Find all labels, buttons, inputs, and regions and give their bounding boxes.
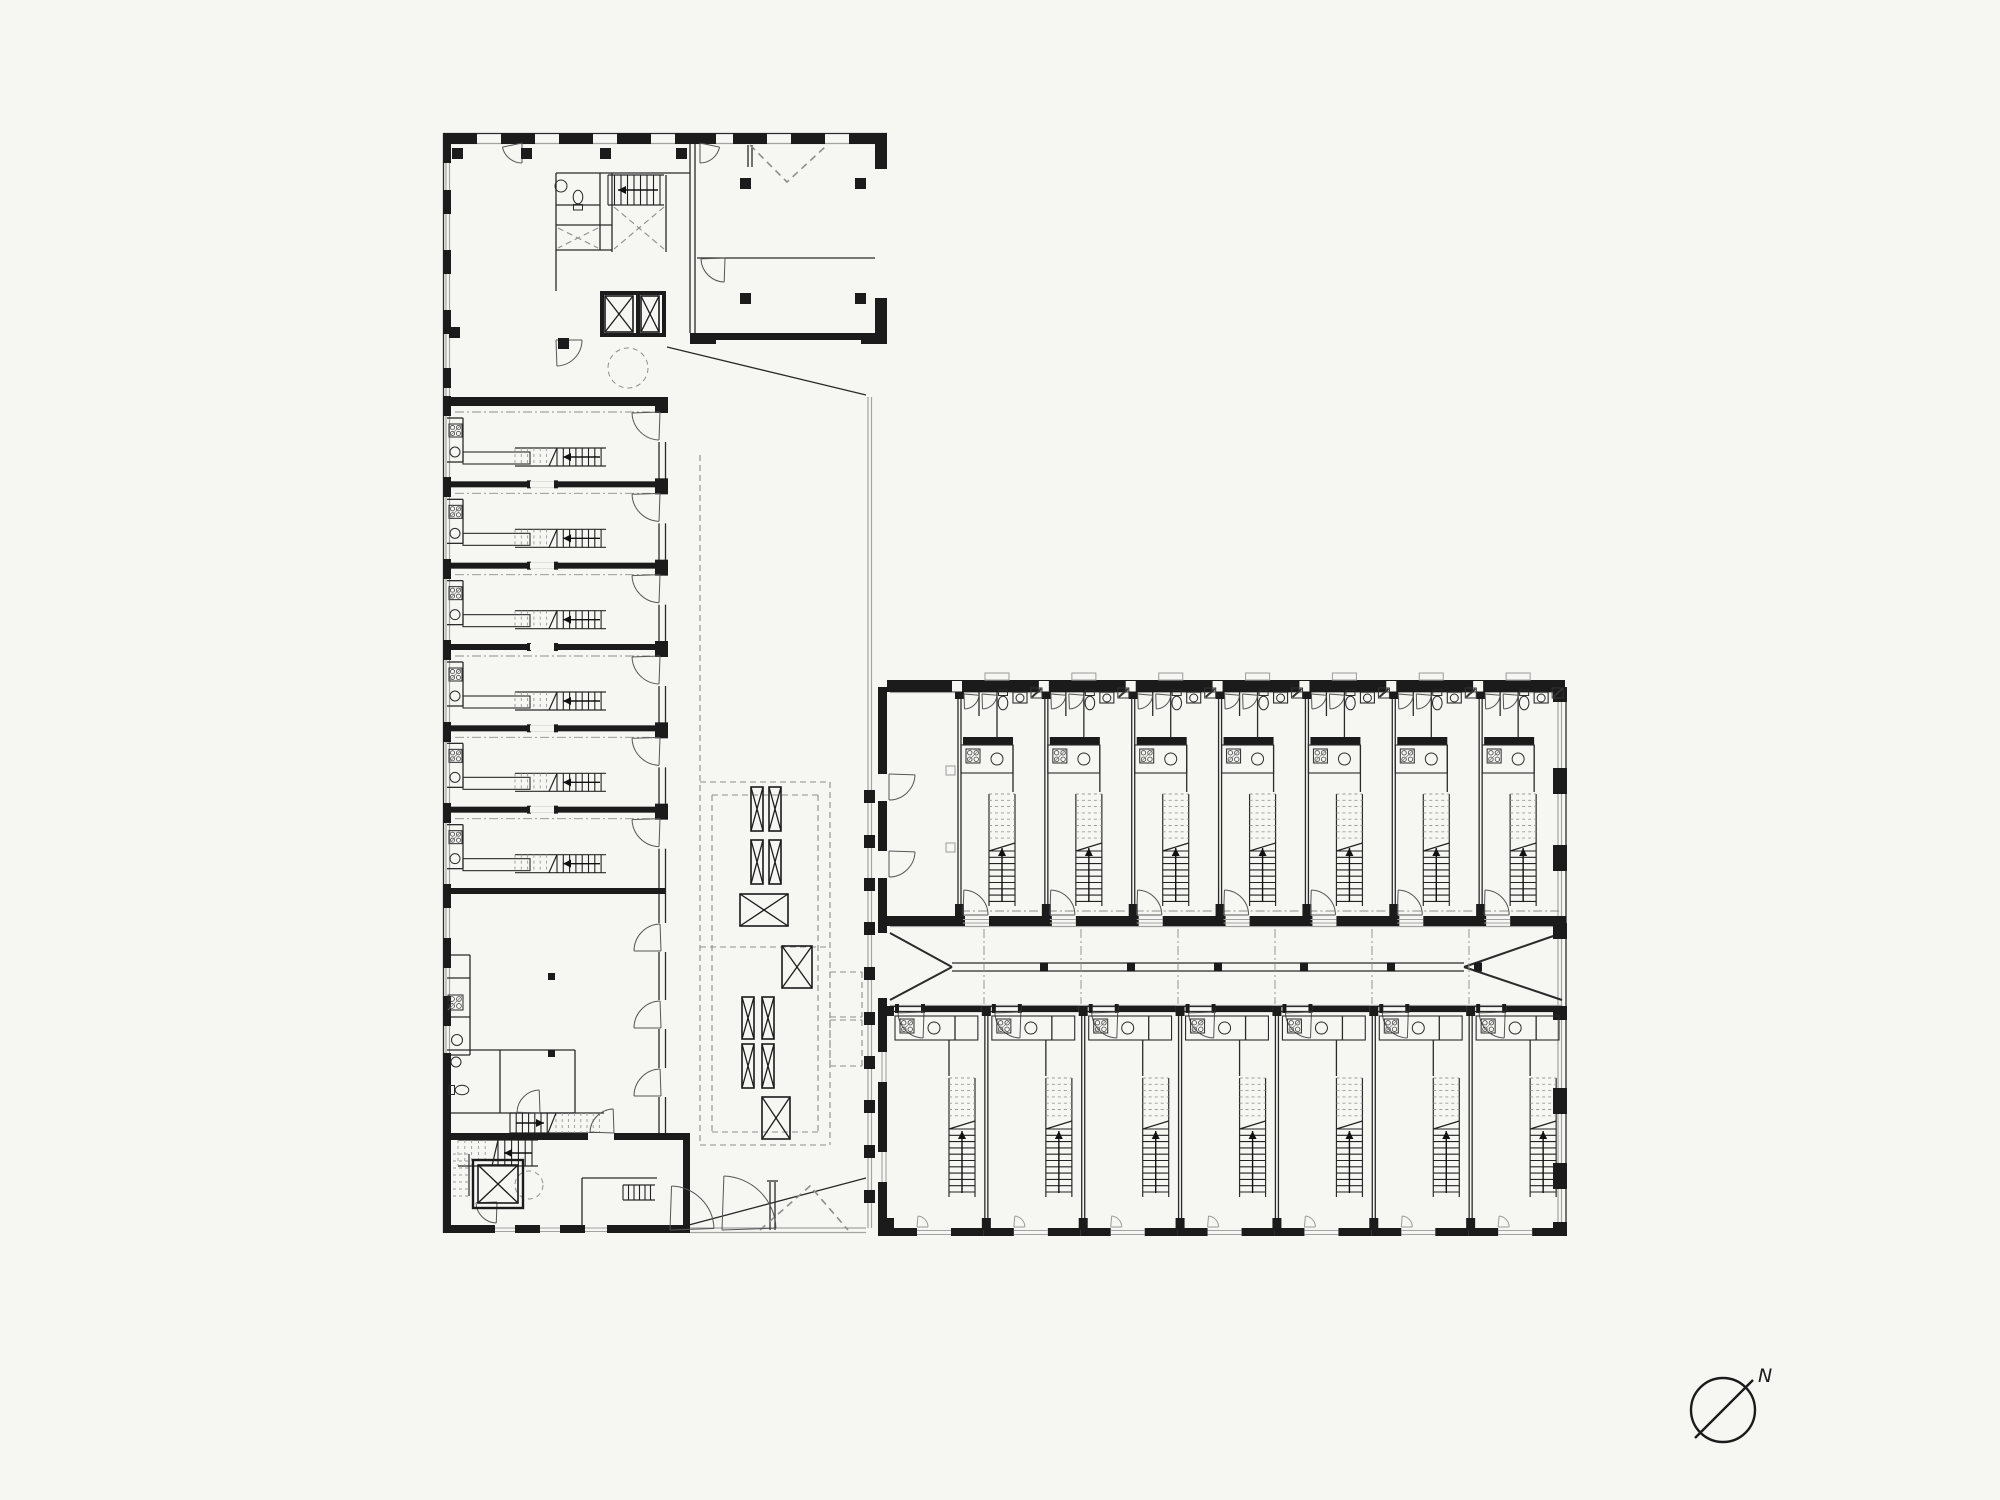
wall-segment: [443, 368, 451, 388]
window-opening: [880, 851, 888, 878]
elevator-shaft: [742, 997, 754, 1039]
wall-segment: [1474, 963, 1482, 972]
window-opening: [530, 481, 554, 487]
marker-outline: [946, 843, 955, 852]
stair: [949, 1078, 975, 1197]
window-opening: [880, 1052, 888, 1082]
sink-fixture: [1425, 753, 1437, 765]
stair: [515, 529, 606, 547]
window-opening: [530, 807, 554, 813]
stair: [608, 175, 664, 205]
wall-segment: [600, 291, 604, 337]
sink-fixture: [1338, 753, 1350, 765]
wall-segment: [617, 133, 651, 144]
door-swing: [722, 1176, 776, 1230]
stair: [1336, 794, 1362, 906]
elevator-shaft: [762, 1097, 790, 1139]
wall-segment: [864, 835, 875, 848]
counter-outline: [463, 533, 530, 545]
door-swing: [1069, 694, 1084, 709]
wall-segment: [1553, 1163, 1567, 1189]
wall-line: [1464, 967, 1562, 1000]
wall-segment: [1387, 963, 1395, 972]
wall-segment: [443, 250, 451, 274]
sink-fixture: [1512, 753, 1524, 765]
wall-segment: [1050, 737, 1100, 745]
sink-fixture: [555, 180, 567, 192]
wall-segment: [864, 967, 875, 980]
wall-opening: [657, 493, 667, 523]
wall-segment: [655, 641, 668, 657]
wall-segment: [554, 643, 558, 651]
wall-segment: [443, 803, 451, 823]
wall-opening: [658, 1000, 667, 1029]
stair: [1433, 1078, 1459, 1197]
window-opening: [588, 1133, 614, 1140]
wall-line: [890, 933, 952, 967]
wall-segment: [1409, 1006, 1466, 1012]
layer-casework: [463, 452, 1559, 1040]
sink-fixture: [1412, 1022, 1424, 1034]
door-swing: [502, 143, 522, 163]
elevator-shaft: [742, 1044, 754, 1088]
stove-fixture: [449, 505, 462, 518]
door-swing: [982, 694, 997, 709]
door-swing: [700, 143, 720, 163]
wall-segment: [887, 916, 957, 926]
wall-opening: [657, 412, 667, 442]
wall-segment: [1178, 1228, 1208, 1236]
wall-segment: [992, 1004, 996, 1013]
stove-fixture: [1400, 749, 1414, 763]
stove-fixture: [449, 668, 462, 681]
dashed-chevron: [760, 1186, 848, 1230]
counter-outline: [463, 696, 530, 708]
wall-segment: [864, 1190, 875, 1203]
door-swing: [1311, 694, 1326, 709]
stair: [515, 692, 606, 710]
wall-segment: [878, 687, 887, 774]
wall-segment: [878, 1082, 887, 1152]
column: [600, 148, 611, 159]
door-swing: [1225, 694, 1240, 709]
sink-fixture: [1103, 694, 1111, 702]
wall-segment: [1137, 737, 1187, 745]
window-opening: [952, 681, 962, 692]
stair: [1510, 794, 1536, 906]
wall-segment: [655, 478, 668, 494]
counter-outline: [463, 859, 530, 871]
wall-segment: [1371, 1228, 1401, 1236]
sink-fixture: [451, 1057, 461, 1067]
sink-fixture: [450, 772, 460, 782]
column: [740, 178, 751, 189]
wall-segment: [864, 1100, 875, 1113]
stair: [1530, 1078, 1556, 1197]
counter-outline: [463, 777, 530, 789]
wall-segment: [675, 133, 709, 144]
door-swing: [1138, 694, 1153, 709]
sink-fixture: [452, 1035, 463, 1046]
sink-fixture: [1363, 694, 1371, 702]
stove-fixture: [449, 749, 462, 762]
wall-segment: [443, 1133, 451, 1232]
window-opening: [530, 725, 554, 731]
counter-outline: [463, 452, 530, 464]
marker-outline: [946, 766, 955, 775]
sink-fixture: [1016, 694, 1024, 702]
north-label: N: [1758, 1365, 1772, 1387]
elevator-shaft: [751, 840, 763, 884]
elevator-shaft: [473, 1160, 523, 1208]
door-swing: [964, 694, 979, 709]
wall-segment: [878, 878, 887, 916]
door-swing: [632, 656, 660, 684]
marker-outline: [985, 673, 1009, 680]
wall-line: [890, 967, 952, 1000]
stair-direction-arrow: [563, 534, 571, 542]
wall-segment: [1389, 916, 1399, 926]
wall-segment: [1369, 1006, 1378, 1016]
counter-outline: [1379, 1016, 1462, 1040]
stair: [1423, 794, 1449, 906]
wall-segment: [554, 806, 558, 814]
stair-direction-arrow: [563, 697, 571, 705]
stove-fixture: [1227, 749, 1241, 763]
wall-segment: [1129, 916, 1139, 926]
elevator-shaft: [751, 787, 763, 831]
elevator-shaft: [605, 296, 633, 332]
wall-segment: [1336, 916, 1392, 926]
wall-segment: [1397, 737, 1447, 745]
wall-segment: [554, 480, 558, 488]
door-swing: [1304, 1216, 1315, 1227]
door-swing: [1485, 694, 1500, 709]
stove-fixture: [1487, 749, 1501, 763]
window-opening: [530, 563, 554, 569]
dashed-chevron: [750, 145, 825, 182]
stair: [458, 1140, 538, 1166]
stair: [1240, 1078, 1266, 1197]
sink-fixture: [1252, 753, 1264, 765]
door-swing: [1329, 694, 1344, 709]
wall-segment: [1079, 1006, 1088, 1016]
wall-segment: [1310, 737, 1360, 745]
wall-segment: [1435, 1228, 1468, 1236]
wall-segment: [887, 1228, 917, 1236]
sink-fixture: [450, 528, 460, 538]
wall-line: [667, 347, 866, 395]
wall-segment: [849, 133, 883, 144]
door-swing: [634, 924, 661, 951]
stair: [515, 773, 606, 791]
wall-segment: [864, 922, 875, 935]
wall-segment: [1081, 1228, 1111, 1236]
marker-outline: [1246, 673, 1270, 680]
stair-direction-arrow: [1345, 848, 1353, 856]
wall-segment: [989, 916, 1045, 926]
stair-direction-arrow: [618, 186, 626, 194]
sink-fixture: [1190, 694, 1198, 702]
wall-segment: [443, 888, 665, 894]
stair: [1076, 794, 1102, 906]
wall-segment: [1242, 1228, 1275, 1236]
wall-segment: [1312, 1006, 1369, 1012]
wall-segment: [1553, 1222, 1567, 1236]
wall-segment: [1022, 1006, 1079, 1012]
sink-fixture: [450, 610, 460, 620]
stair-direction-arrow: [563, 860, 571, 868]
wall-segment: [1250, 916, 1306, 926]
column: [855, 178, 866, 189]
marker-outline: [1159, 673, 1183, 680]
floor-plan-page: N: [0, 0, 2000, 1500]
window-opening: [530, 644, 554, 650]
wall-segment: [443, 190, 451, 214]
wall-segment: [1553, 845, 1567, 871]
wall-line: [1464, 933, 1562, 967]
wall-segment: [443, 133, 451, 163]
door-swing: [632, 575, 660, 603]
sink-fixture: [1450, 694, 1458, 702]
stair-direction-arrow: [1259, 848, 1267, 856]
sink-fixture: [991, 753, 1003, 765]
elevator-shaft: [762, 997, 774, 1039]
wall-segment: [878, 801, 887, 851]
door-swing: [701, 258, 725, 282]
door-swing: [476, 1202, 497, 1223]
wall-segment: [895, 1004, 899, 1013]
wall-segment: [963, 737, 1013, 745]
elevator-shaft: [740, 894, 788, 926]
door-swing: [632, 737, 660, 765]
door-swing: [889, 851, 915, 877]
wall-segment: [1040, 963, 1048, 972]
wall-segment: [1553, 1006, 1567, 1020]
wall-segment: [1423, 916, 1479, 926]
column: [676, 148, 687, 159]
counter-outline: [1186, 1016, 1269, 1040]
sink-fixture: [1537, 694, 1545, 702]
wall-segment: [1048, 1228, 1081, 1236]
door-swing: [634, 1069, 661, 1096]
layer-walls: [443, 133, 1567, 1236]
wall-segment: [559, 133, 593, 144]
wall-segment: [1163, 916, 1219, 926]
stair: [515, 855, 606, 873]
wall-segment: [443, 1218, 451, 1233]
wall-segment: [655, 804, 668, 820]
sink-fixture: [928, 1022, 940, 1034]
window-opening: [880, 1152, 888, 1182]
door-swing: [632, 493, 660, 521]
wall-segment: [1176, 1006, 1185, 1016]
wall-segment: [1145, 1228, 1178, 1236]
wall-segment: [600, 333, 666, 337]
wall-segment: [1216, 1006, 1273, 1012]
door-swing: [1398, 694, 1413, 709]
stair-direction-arrow: [536, 1119, 544, 1127]
stove-fixture: [449, 587, 462, 600]
wall-segment: [1379, 1004, 1383, 1013]
wall-segment: [864, 1145, 875, 1158]
stair-direction-arrow: [1519, 848, 1527, 856]
door-swing: [1498, 1216, 1509, 1227]
window-opening: [880, 774, 888, 801]
wall-segment: [1076, 916, 1132, 926]
door-swing: [1416, 694, 1431, 709]
sink-fixture: [1078, 753, 1090, 765]
column: [548, 1050, 555, 1057]
door-swing: [1051, 694, 1066, 709]
wall-segment: [1214, 963, 1222, 972]
wall-segment: [1553, 1088, 1567, 1114]
counter-outline: [992, 1016, 1075, 1040]
stair-direction-arrow: [1172, 848, 1180, 856]
floor-plan-drawing: N: [0, 0, 2000, 1500]
column: [548, 973, 555, 980]
elevator-shaft: [782, 946, 812, 988]
wall-segment: [683, 1133, 690, 1232]
column: [521, 148, 532, 159]
marker-outline: [1419, 673, 1443, 680]
stair: [515, 448, 606, 466]
stair: [623, 1185, 655, 1200]
wall-segment: [1484, 737, 1534, 745]
wall-segment: [1300, 963, 1308, 972]
door-swing: [1111, 1216, 1122, 1227]
toilet-fixture: [573, 190, 583, 210]
column: [855, 293, 866, 304]
door-swing: [1401, 1216, 1412, 1227]
wall-line: [670, 1178, 866, 1230]
door-swing: [1014, 1216, 1025, 1227]
door-swing: [1156, 694, 1171, 709]
wall-segment: [655, 560, 668, 576]
counter-outline: [1282, 1016, 1365, 1040]
sink-fixture: [1509, 1022, 1521, 1034]
counter-outline: [895, 1016, 978, 1040]
wall-segment: [443, 722, 451, 742]
door-swing: [632, 819, 660, 847]
wall-segment: [443, 1225, 690, 1233]
wall-opening: [657, 737, 667, 767]
sink-fixture: [1277, 694, 1285, 702]
wall-segment: [1468, 1228, 1498, 1236]
door-swing: [917, 1216, 928, 1227]
wall-segment: [864, 1012, 875, 1025]
wall-segment: [1272, 1006, 1281, 1016]
stair: [1143, 1078, 1169, 1197]
dashed-line: [558, 228, 598, 248]
stove-fixture: [966, 749, 980, 763]
door-swing: [632, 412, 660, 440]
wall-segment: [1042, 916, 1052, 926]
wall-segment: [864, 790, 875, 803]
wall-opening: [658, 923, 667, 952]
sink-fixture: [450, 691, 460, 701]
wall-segment: [878, 916, 887, 933]
wall-opening: [658, 1068, 667, 1097]
wall-segment: [864, 1056, 875, 1069]
stair: [1163, 794, 1189, 906]
wall-segment: [984, 1228, 1014, 1236]
wall-segment: [925, 1006, 982, 1012]
door-swing: [670, 1186, 714, 1230]
door-swing: [1243, 694, 1258, 709]
stair: [1336, 1078, 1362, 1197]
floor-plan: [443, 133, 1567, 1236]
wall-segment: [1127, 963, 1135, 972]
wall-segment: [1302, 916, 1312, 926]
stove-fixture: [1053, 749, 1067, 763]
stair-direction-arrow: [563, 616, 571, 624]
wall-segment: [501, 133, 535, 144]
wall-opening: [657, 575, 667, 605]
sink-fixture: [1219, 1022, 1231, 1034]
stair: [1046, 1078, 1072, 1197]
wall-segment: [443, 640, 451, 660]
counter-outline: [463, 615, 530, 627]
layer-shafts: [473, 296, 812, 1208]
wall-segment: [443, 884, 451, 908]
wall-segment: [791, 133, 825, 144]
wall-segment: [982, 1006, 991, 1016]
wall-segment: [443, 396, 451, 416]
wall-segment: [733, 133, 767, 144]
stair-direction-arrow: [563, 453, 571, 461]
north-arrow: N: [1691, 1365, 1772, 1442]
wall-segment: [1274, 1228, 1304, 1236]
sink-fixture: [1165, 753, 1177, 765]
wall-segment: [443, 477, 451, 497]
stove-fixture: [449, 424, 462, 437]
counter-outline: [1089, 1016, 1172, 1040]
wall-segment: [1466, 1006, 1475, 1016]
elevator-shaft: [762, 1044, 774, 1088]
door-swing: [634, 1001, 661, 1028]
wall-segment: [951, 1228, 984, 1236]
wall-segment: [1089, 1004, 1093, 1013]
wall-segment: [1476, 916, 1486, 926]
wall-segment: [1216, 916, 1226, 926]
wall-segment: [887, 680, 1565, 692]
door-swing: [1208, 1216, 1219, 1227]
door-swing: [1503, 694, 1518, 709]
wall-segment: [655, 722, 668, 738]
stair-direction-arrow: [1085, 848, 1093, 856]
clearance-circle: [515, 1171, 543, 1199]
sink-fixture: [1122, 1022, 1134, 1034]
wall-segment: [878, 998, 887, 1006]
stair: [1250, 794, 1276, 906]
wall-segment: [600, 291, 666, 295]
door-swing: [517, 1090, 540, 1113]
wall-segment: [1119, 1006, 1176, 1012]
sink-fixture: [450, 854, 460, 864]
stove-fixture: [1140, 749, 1154, 763]
wall-segment: [1186, 1004, 1190, 1013]
sink-fixture: [1315, 1022, 1327, 1034]
wall-segment: [554, 724, 558, 732]
marker-outline: [1072, 673, 1096, 680]
column: [452, 148, 463, 159]
marker-outline: [1332, 673, 1356, 680]
stove-fixture: [449, 831, 462, 844]
stair: [989, 794, 1015, 906]
column: [558, 338, 569, 349]
clearance-circle: [608, 348, 648, 388]
